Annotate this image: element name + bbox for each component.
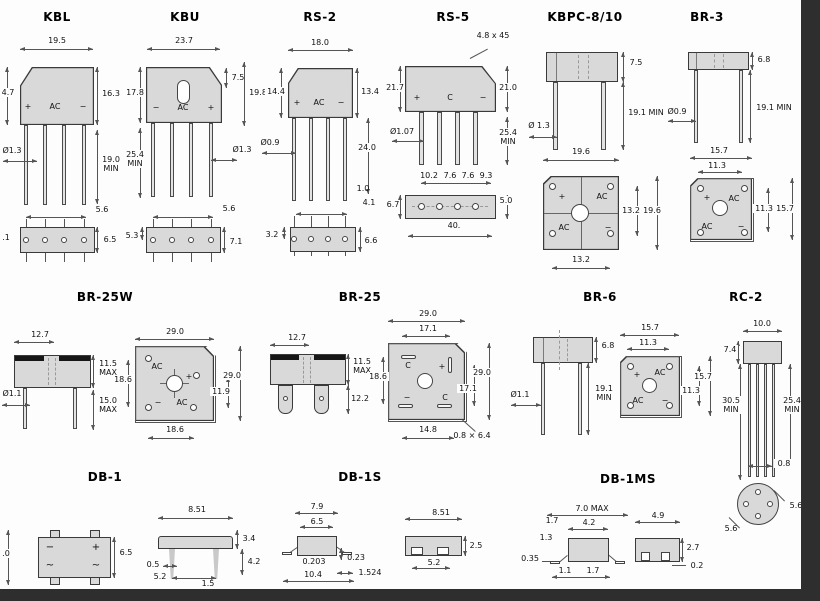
- mark-minus: −: [153, 398, 163, 407]
- rc2-lead: [748, 364, 751, 477]
- mark-ac: AC: [631, 396, 645, 405]
- dim-line: [552, 577, 610, 578]
- kbl-body: [20, 67, 94, 125]
- centerline: [723, 54, 724, 68]
- pkg-title: BR-25W: [75, 290, 135, 304]
- dim-sv-height: 2.7: [684, 543, 702, 552]
- dim-sq-left: 18.6: [112, 375, 134, 384]
- dim-lead-length: 25.4 MIN: [123, 150, 147, 168]
- dim-sq-right: 29.0: [221, 371, 243, 380]
- pin-hole: [666, 363, 673, 370]
- dim-body-thickness: 3.4: [240, 534, 258, 543]
- pin-hole: [190, 404, 197, 411]
- dim-line: [710, 356, 711, 416]
- dim-sv-pitch: 5.2: [423, 558, 445, 567]
- rs5-body: [405, 66, 496, 112]
- dim-line: [135, 339, 214, 340]
- body-stripe: [314, 355, 345, 360]
- pin-hole: [549, 183, 556, 190]
- pkg-title: KBU: [160, 10, 210, 24]
- mark-ac: AC: [595, 192, 609, 201]
- dim-line: [93, 355, 94, 388]
- mark-plus: +: [632, 370, 642, 379]
- dim-d2: 1.3: [538, 533, 554, 542]
- dim-lead-width: 0.5: [143, 560, 163, 569]
- dim-lead-length: 4.2: [245, 557, 263, 566]
- dim-line: [153, 217, 213, 218]
- kbu-lead: [151, 123, 155, 197]
- dim-line: [402, 336, 450, 337]
- pin-hole: [42, 237, 48, 243]
- dim-w1: 7.9: [306, 502, 328, 511]
- dim-left-height: 17.8: [124, 88, 146, 97]
- pin-hole: [81, 237, 87, 243]
- dim-line: [20, 49, 93, 50]
- page-right-edge: [801, 0, 820, 601]
- mark-minus: −: [602, 223, 614, 232]
- dim-line: [283, 581, 354, 582]
- dim-left-height: 21.7: [385, 83, 405, 92]
- lead-foot: [615, 561, 625, 564]
- mark-ac: AC: [653, 368, 667, 377]
- dim-line: [300, 527, 333, 528]
- mark-minus: −: [477, 93, 489, 102]
- dim-lead-dia: Ø0.9: [258, 138, 282, 147]
- dim-sv-top: 8.51: [424, 508, 458, 517]
- package-outline-drawing-page: KBL 19.5 + AC − 4.7 16.3 19.0 MIN Ø1.3 5…: [0, 0, 820, 601]
- mark-ac: AC: [48, 102, 62, 111]
- rs2-body: [288, 68, 353, 118]
- dim-line: [288, 50, 353, 51]
- pin-hole: [23, 237, 29, 243]
- pin-hole: [454, 203, 461, 210]
- dim-sq-inner-right: 17.1: [457, 384, 479, 393]
- br6-body: [533, 337, 593, 363]
- dim-line: [402, 438, 454, 439]
- lead-hole: [319, 396, 324, 401]
- dim-lead-width: 0.8: [774, 459, 794, 468]
- dim-top-width: 19.5: [42, 36, 72, 45]
- dim-sq-inner-right: 11.3: [681, 386, 701, 395]
- dim-lead-dia: Ø1.07: [388, 127, 416, 136]
- pin-hole: [342, 236, 348, 242]
- dim-tab-length: 12.2: [350, 394, 370, 403]
- pin-hole: [208, 237, 214, 243]
- dim-line: [596, 337, 597, 363]
- mark-ac: ~: [90, 560, 102, 572]
- dim-body-height: 6.8: [755, 55, 773, 64]
- dim-line: [588, 363, 589, 435]
- dim-line: [348, 354, 349, 385]
- pin-hole: [418, 203, 425, 210]
- dim-sq-bottom: 18.6: [160, 425, 190, 434]
- br3-lead: [739, 70, 743, 143]
- dim-t2: 0.23: [344, 553, 368, 562]
- dim-lead-length: 19.1 MIN: [626, 108, 666, 117]
- dim-lead-length: 15.0 MAX: [96, 396, 120, 414]
- body-edge-line: [556, 53, 557, 81]
- dim-lead-length: 19.0 MIN: [100, 155, 122, 173]
- dim-sv-top: 4.9: [648, 511, 668, 520]
- mark-ac: AC: [557, 223, 571, 232]
- dim-sq-inner-top: 17.1: [413, 324, 443, 333]
- dim-line: [421, 183, 491, 184]
- pin-hole: [472, 203, 479, 210]
- dim-sq-outer: 19.6: [641, 206, 663, 215]
- dim-line: [392, 141, 424, 142]
- page-bottom-edge: [0, 589, 820, 601]
- body-stripe: [59, 356, 90, 361]
- dim-standoff: 1.0: [354, 184, 372, 193]
- dim-line: [743, 331, 782, 332]
- pkg-title: RS-2: [295, 10, 345, 24]
- br3-body: [688, 52, 749, 70]
- dim-line: [93, 390, 94, 430]
- dim-left-height: 14.4: [265, 87, 287, 96]
- terminal-slot: [448, 357, 452, 373]
- dim-line: [690, 158, 752, 159]
- body-stripe: [271, 355, 299, 360]
- mark-ac: ~: [44, 560, 56, 572]
- dim-sq-inner-right: 11.9: [210, 387, 232, 396]
- kbu-lead: [189, 123, 193, 197]
- dim-d3: 0.35: [519, 554, 541, 563]
- dim-line: [368, 118, 369, 194]
- dim-chamfer: 4.8 x 45: [471, 31, 515, 40]
- pin-hole: [61, 237, 67, 243]
- dim-pitch2: 7.6: [441, 171, 459, 180]
- mark-plus: +: [22, 102, 34, 111]
- br6-lead: [541, 363, 545, 435]
- mark-plus: +: [411, 93, 423, 102]
- mark-plus: +: [437, 362, 447, 371]
- dim-w3: 10.4: [300, 570, 326, 579]
- dim-hole-offset: .1: [0, 233, 12, 242]
- db1ms-body: [568, 538, 609, 562]
- lead-foot: [550, 561, 560, 564]
- dim-line: [740, 364, 741, 480]
- centerline: [303, 357, 304, 383]
- pin-hole: [291, 236, 297, 242]
- dim-line: [3, 161, 37, 162]
- terminal-slot: [398, 404, 413, 408]
- dim-line: [360, 227, 361, 252]
- terminal-slot: [437, 404, 452, 408]
- dim-sq-top: 15.7: [704, 146, 734, 155]
- dim-line: [738, 341, 739, 364]
- dim-line: [405, 519, 462, 520]
- dim-sq-inner-top: 11.3: [702, 161, 732, 170]
- rs5-lead: [437, 112, 442, 165]
- pin-hole: [767, 501, 773, 507]
- mark-ac: AC: [312, 98, 326, 107]
- dim-line: [552, 268, 610, 269]
- dim-offset: 4.1: [360, 198, 378, 207]
- dim-line: [750, 70, 751, 143]
- dim-t3: 1.524: [355, 568, 385, 577]
- dim-left-height: 4.7: [0, 88, 16, 97]
- br6-lead: [578, 363, 582, 435]
- pin-hole: [436, 203, 443, 210]
- body-edge-line: [696, 53, 697, 69]
- centerline: [48, 358, 49, 385]
- dim-sv-standoff: 0.2: [687, 561, 707, 570]
- dim-lead-length: 19.1 MIN: [592, 384, 616, 402]
- mark-c: C: [439, 393, 451, 402]
- dim-sq-right: 15.7: [692, 372, 714, 381]
- dim-right-height: 16.3: [100, 89, 122, 98]
- mark-ac: AC: [150, 362, 164, 371]
- dim-w2: 4.2: [578, 518, 600, 527]
- dim-pitch: 5.6: [219, 204, 239, 213]
- dim-pin-spacing: 5.6: [722, 524, 740, 533]
- dim-line: [26, 217, 86, 218]
- dim-line: [114, 537, 115, 578]
- centerline: [55, 358, 56, 385]
- rs2-lead: [292, 118, 296, 201]
- dim-line: [408, 236, 492, 237]
- mounting-hole: [166, 375, 183, 392]
- dim-w2: 6.5: [306, 517, 328, 526]
- dim-lead-length: 19.1 MIN: [753, 103, 795, 112]
- pin-hole: [755, 489, 761, 495]
- dim-line: [337, 573, 353, 574]
- dim-line: [262, 153, 296, 154]
- dim-side-top: 12.7: [26, 330, 54, 339]
- dim-line: [682, 538, 683, 562]
- dim-line: [412, 568, 450, 569]
- lead-hole: [283, 396, 288, 401]
- mounting-hole: [642, 378, 657, 393]
- dim-lead-length: 25.4 MIN: [496, 128, 520, 146]
- mark-minus: −: [44, 542, 56, 554]
- db1-lead: [213, 549, 219, 579]
- dim-lead-dia: Ø0.9: [664, 107, 690, 116]
- pin-hole: [755, 513, 761, 519]
- dim-line: [635, 522, 680, 523]
- dim-lead-dia: Ø1.1: [508, 390, 532, 399]
- centerline: [714, 54, 715, 68]
- dim-sq-top: 29.0: [160, 327, 190, 336]
- dim-lead-dia: Ø1.3: [230, 145, 254, 154]
- pin-hole: [188, 237, 194, 243]
- dim-d1: 1.7: [543, 516, 561, 525]
- dim-line: [529, 137, 557, 138]
- dim-line: [270, 345, 309, 346]
- rs2-lead: [343, 118, 347, 201]
- pkg-title: DB-1MS: [598, 472, 658, 486]
- dim-sq-bottom: 14.8: [413, 425, 443, 434]
- pkg-title: KBPC-8/10: [540, 10, 630, 24]
- pin-hole: [193, 372, 200, 379]
- br25w-lead: [73, 388, 77, 429]
- dim-line: [147, 49, 220, 50]
- dim-bottom-height: 7.1: [228, 237, 244, 246]
- mark-c: C: [444, 93, 456, 102]
- dim-left-fragment: .0: [0, 549, 12, 558]
- dim-line: [14, 342, 54, 343]
- dim-line: [620, 335, 679, 336]
- dim-right-height: 21.0: [497, 83, 519, 92]
- dim-line: [348, 385, 349, 414]
- mark-plus: +: [205, 103, 217, 112]
- lead-foot: [661, 552, 670, 561]
- dim-sq-top: 29.0: [413, 309, 443, 318]
- dim-offset: 1.5: [198, 579, 218, 588]
- mounting-hole: [417, 373, 433, 389]
- dim-body-height: 7.4: [722, 345, 738, 354]
- dim-top-width: 18.0: [303, 38, 337, 47]
- dim-w1: 7.0 MAX: [570, 504, 614, 513]
- dim-top-width: 23.7: [167, 36, 201, 45]
- rc2-lead: [756, 364, 759, 477]
- kbl-lead: [24, 125, 28, 205]
- dim-line: [489, 343, 490, 420]
- dim-lead-length: 24.0: [355, 143, 379, 152]
- pkg-title: DB-1: [80, 470, 130, 484]
- rs2-lead: [309, 118, 313, 201]
- dim-body-height: 7.5: [627, 58, 645, 67]
- pkg-title: RS-5: [428, 10, 478, 24]
- mark-ac: AC: [700, 222, 714, 231]
- lead-foot: [411, 547, 423, 555]
- dim-pitch: 5.2: [150, 572, 170, 581]
- mark-plus: +: [90, 542, 102, 554]
- dim-bottom-height: 6.6: [363, 236, 379, 245]
- dim-line: [97, 130, 98, 204]
- centerline: [588, 55, 589, 79]
- dim-line: [142, 227, 143, 240]
- dim-sq-bottom: 13.2: [566, 255, 596, 264]
- dim-body-height: 6.5: [117, 548, 135, 557]
- rs5-lead: [473, 112, 478, 165]
- kbpc-lead: [601, 82, 606, 150]
- pkg-title: RC-2: [721, 290, 771, 304]
- dim-line: [623, 52, 624, 82]
- dim-right-height: 13.4: [359, 87, 381, 96]
- terminal-slot: [401, 355, 416, 359]
- pin-hole: [743, 501, 749, 507]
- dim-side-top: 12.7: [283, 333, 311, 342]
- dim-line: [465, 536, 466, 556]
- dim-line: [400, 195, 401, 219]
- lead-foot: [282, 552, 292, 555]
- dim-line: [224, 227, 225, 253]
- kbl-lead: [82, 125, 86, 205]
- dim-line: [295, 513, 338, 514]
- centerline: [310, 357, 311, 383]
- body-edge-line: [543, 338, 544, 362]
- dim-line: [240, 346, 241, 421]
- dim-pitch4: 9.3: [477, 171, 495, 180]
- dim-lead-dia: Ø1.1: [0, 389, 24, 398]
- mark-plus: +: [184, 372, 194, 381]
- dim-line: [748, 466, 772, 467]
- dim-bottom-height: 6.5: [101, 235, 119, 244]
- dim-line: [623, 82, 624, 150]
- body-stripe: [15, 356, 44, 361]
- mark-minus: −: [335, 98, 347, 107]
- mark-minus: −: [735, 222, 747, 231]
- dim-slot-offset: 7.5: [229, 73, 247, 82]
- dim-slot-size-note: 0.8 × 6.4: [448, 431, 496, 440]
- rs2-lead: [326, 118, 330, 201]
- mark-plus: +: [701, 193, 713, 202]
- dim-pitch1: 10.2: [417, 171, 441, 180]
- mark-ac: AC: [727, 194, 741, 203]
- db1s-body: [297, 536, 337, 556]
- dim-sq-top: 15.7: [635, 323, 665, 332]
- mark-ac: AC: [175, 398, 189, 407]
- dim-line: [388, 321, 465, 322]
- dim-line: [668, 121, 696, 122]
- dim-hole-offset: 5.3: [124, 231, 140, 240]
- dim-line: [97, 67, 98, 125]
- mark-plus: +: [291, 98, 303, 107]
- dim-t1: 0.203: [299, 557, 329, 566]
- dim-line: [2, 405, 30, 406]
- dim-line: [242, 549, 243, 575]
- pkg-title: BR-3: [682, 10, 732, 24]
- dim-line: [158, 518, 233, 519]
- dim-line: [237, 530, 238, 549]
- dim-sv-height: 2.5: [467, 541, 485, 550]
- mark-plus: +: [556, 192, 568, 201]
- dim-line: [627, 349, 669, 350]
- mark-c: C: [402, 361, 414, 370]
- pin-hole: [308, 236, 314, 242]
- dim-hole-offset: 3.2: [264, 230, 280, 239]
- dim-lead-dia: Ø 1.3: [526, 121, 552, 130]
- mounting-hole: [571, 204, 589, 222]
- dim-line: [296, 214, 347, 215]
- pin-hole: [145, 404, 152, 411]
- dim-line: [672, 565, 686, 566]
- mounting-slot: [177, 80, 190, 104]
- dim-bv-width: 40.: [440, 221, 468, 230]
- lead-foot: [641, 552, 650, 561]
- dim-sq-inner-top: 11.3: [633, 338, 663, 347]
- dim-line: [97, 227, 98, 253]
- lead-foot: [437, 547, 449, 555]
- rc2-lead: [764, 364, 767, 477]
- pkg-title: DB-1S: [335, 470, 385, 484]
- dim-d4: 1.1: [556, 566, 574, 575]
- dim-bv-left: 6.7: [386, 200, 400, 209]
- mark-minus: −: [150, 103, 162, 112]
- pkg-title: BR-6: [575, 290, 625, 304]
- dim-pitch: 5.6: [92, 205, 112, 214]
- pin-hole: [145, 355, 152, 362]
- dim-line: [284, 227, 285, 239]
- pin-hole: [169, 237, 175, 243]
- dim-bv-right: 5.0: [497, 196, 515, 205]
- pkg-title: KBL: [32, 10, 82, 24]
- br3-lead: [694, 70, 698, 143]
- pin-hole: [549, 230, 556, 237]
- centerline: [559, 330, 560, 370]
- dim-body-height: 6.8: [599, 341, 617, 350]
- kbu-lead: [170, 123, 174, 197]
- pin-hole: [150, 237, 156, 243]
- dim-line: [698, 172, 742, 173]
- dim-sq-inner-right: 11.3: [753, 204, 775, 213]
- db1-side-body: [158, 536, 233, 549]
- dim-line: [511, 405, 541, 406]
- dim-line: [357, 68, 358, 118]
- dim-lead-dia: Ø1.3: [1, 146, 23, 155]
- pin-hole: [627, 363, 634, 370]
